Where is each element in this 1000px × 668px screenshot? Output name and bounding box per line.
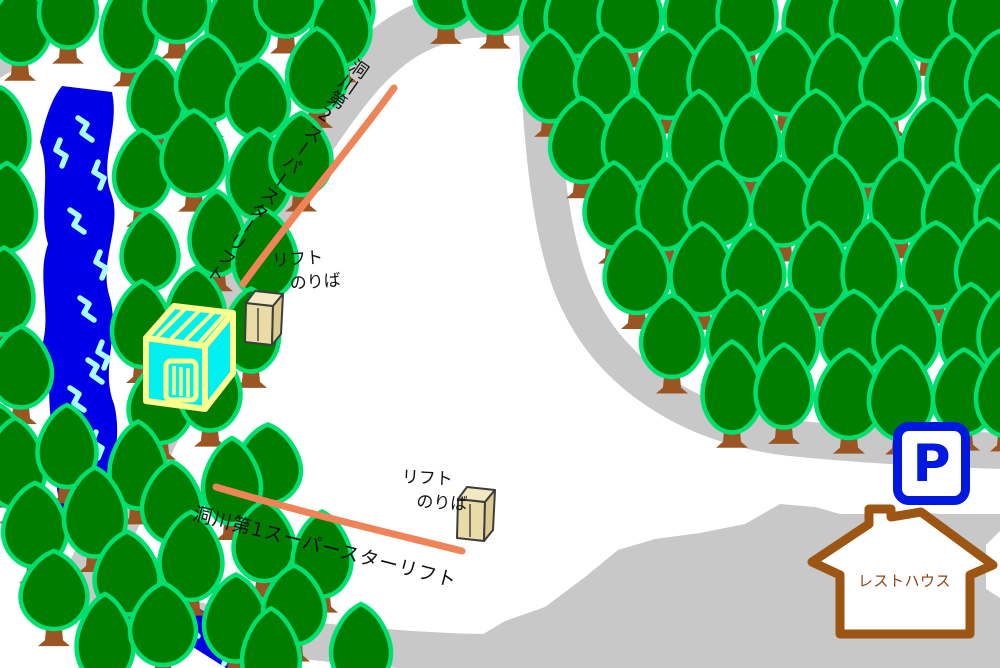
lift-boarding-line1: リフト [401, 467, 453, 490]
tree [464, 0, 526, 49]
tree [39, 0, 97, 64]
lift-boarding-label-2: リフト のりば [271, 246, 341, 298]
lift-station-box-2 [245, 291, 283, 345]
lift-boarding-line1: リフト [271, 248, 323, 272]
map-canvas [0, 0, 1000, 668]
parking-sign-letter: P [912, 438, 950, 490]
rest-house-label: レストハウス [858, 570, 951, 591]
lift-boarding-label-1: リフト のりば [400, 466, 469, 517]
ski-area-map: 洞川第2スーパースターリフト 洞川第1スーパースターリフト リフト のりば リフ… [0, 0, 1000, 668]
lift-boarding-line2: のりば [416, 491, 468, 517]
lift-hut [146, 306, 233, 409]
parking-sign: P [893, 422, 970, 505]
lift-boarding-line2: のりば [289, 269, 342, 296]
tree [331, 604, 391, 668]
